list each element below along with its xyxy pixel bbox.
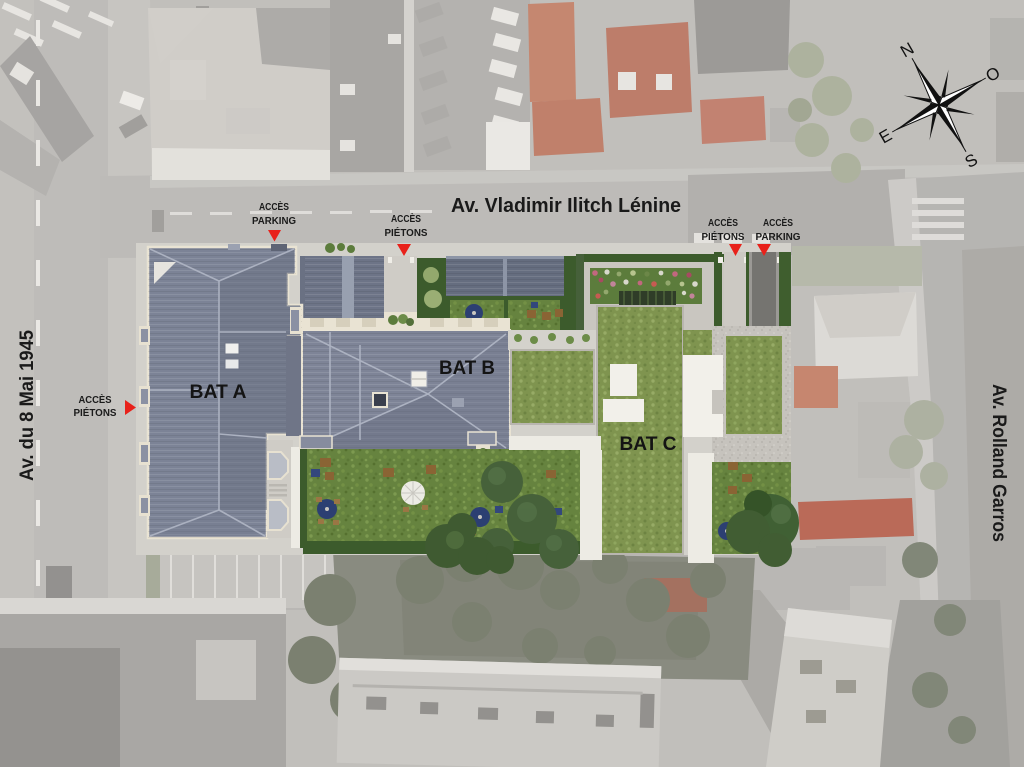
svg-text:BAT C: BAT C <box>620 433 677 455</box>
svg-text:BAT B: BAT B <box>439 358 495 379</box>
svg-text:PARKING: PARKING <box>252 215 296 227</box>
svg-text:Av. du 8 Mai 1945: Av. du 8 Mai 1945 <box>17 330 38 481</box>
svg-text:PIÉTONS: PIÉTONS <box>74 406 117 419</box>
svg-text:Av. Rolland Garros: Av. Rolland Garros <box>988 384 1009 542</box>
svg-text:PARKING: PARKING <box>756 231 801 243</box>
svg-text:PIÉTONS: PIÉTONS <box>385 226 428 239</box>
svg-text:ACCÈS: ACCÈS <box>79 393 112 406</box>
svg-text:Av. Vladimir Ilitch Lénine: Av. Vladimir Ilitch Lénine <box>451 194 681 217</box>
svg-text:ACCÈS: ACCÈS <box>259 200 289 213</box>
svg-text:ACCÈS: ACCÈS <box>708 216 738 229</box>
svg-text:PIÉTONS: PIÉTONS <box>702 230 745 243</box>
svg-text:ACCÈS: ACCÈS <box>391 212 421 225</box>
svg-text:BAT A: BAT A <box>190 382 247 403</box>
svg-text:ACCÈS: ACCÈS <box>763 216 793 229</box>
